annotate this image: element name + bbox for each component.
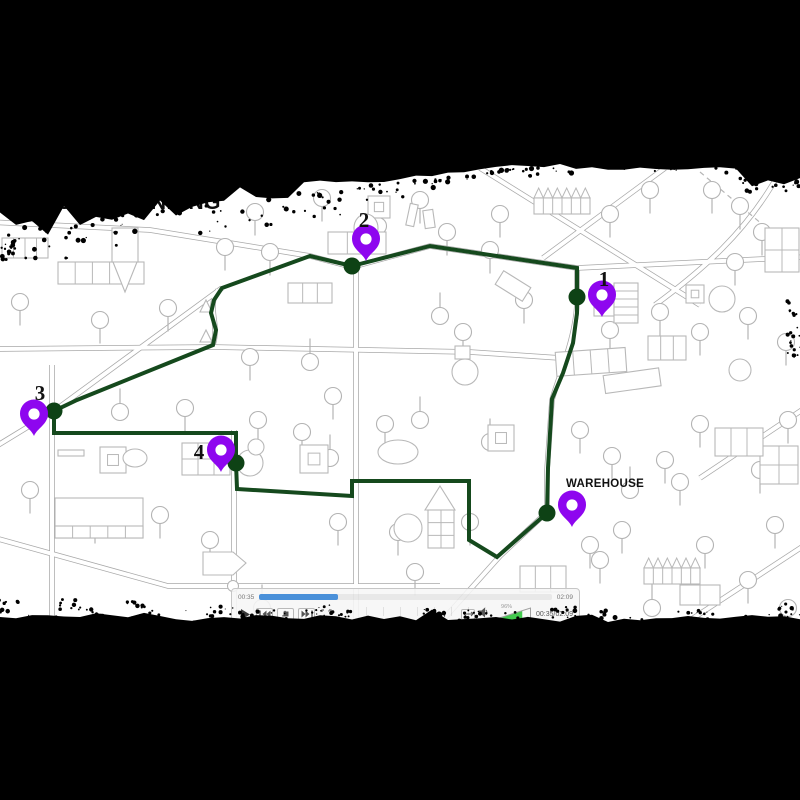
transport-row: 96% 00:35/02:09 — [238, 605, 573, 623]
seek-bar[interactable] — [259, 594, 551, 600]
next-frame-icon — [301, 610, 313, 618]
previous-frame-button[interactable] — [256, 608, 273, 621]
stop-icon — [282, 610, 290, 618]
stop-button[interactable] — [277, 608, 294, 621]
play-button[interactable] — [238, 608, 252, 621]
pin-hole — [28, 408, 39, 419]
pin-hole — [566, 499, 577, 510]
stop-label-2: 2 — [359, 208, 370, 232]
warehouse-pin[interactable] — [558, 491, 586, 528]
expand-icon — [321, 609, 332, 620]
video-player-controls: 00:35 02:09 — [231, 588, 580, 626]
play-icon — [241, 609, 250, 620]
stop-label-1: 1 — [599, 267, 610, 291]
map-artwork — [0, 168, 800, 632]
seek-bar-fill — [259, 594, 338, 600]
page-title: ROUTE PLANNING — [25, 191, 221, 215]
stop-label-4: 4 — [194, 440, 205, 464]
pin-hole — [215, 444, 226, 455]
elapsed-time: 00:35 — [238, 594, 254, 601]
screenshot-root: 1 2 3 4 WAREHOUSE ROUTE PLANNING 00:35 0… — [0, 0, 800, 800]
pin-hole — [596, 289, 607, 300]
seek-row: 00:35 02:09 — [238, 592, 573, 602]
pin-hole — [360, 233, 371, 244]
map-canvas: 1 2 3 4 WAREHOUSE — [0, 0, 800, 800]
volume-slider[interactable]: 96% — [492, 607, 532, 621]
warehouse-label: WAREHOUSE — [566, 478, 644, 490]
duration-time: 02:09 — [557, 594, 573, 601]
volume-percent: 96% — [501, 604, 512, 610]
route-node — [344, 258, 361, 275]
route-node — [46, 403, 63, 420]
fullscreen-button[interactable] — [319, 608, 333, 621]
previous-frame-icon — [259, 610, 271, 618]
route-node — [569, 289, 586, 306]
route-node — [539, 505, 556, 522]
time-display: 00:35/02:09 — [536, 611, 573, 618]
frame-ticks — [350, 607, 488, 616]
stop-label-3: 3 — [35, 381, 46, 405]
next-frame-button[interactable] — [298, 608, 315, 621]
